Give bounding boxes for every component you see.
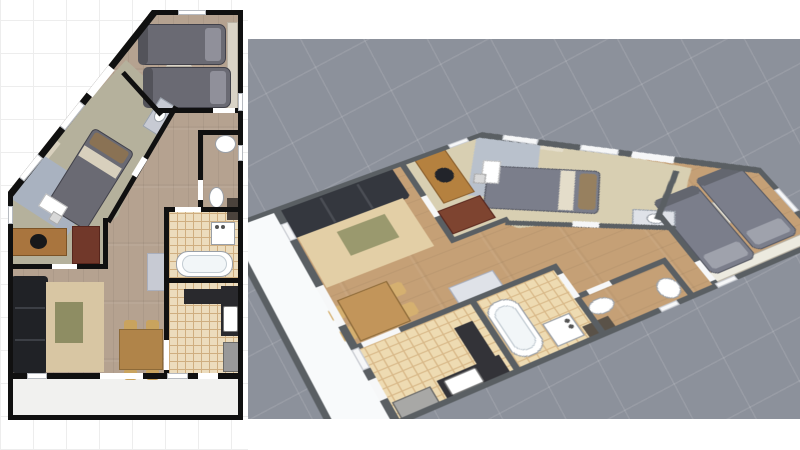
- dining-table: [119, 329, 163, 370]
- master-desk-chair: [473, 173, 487, 183]
- window-top: [178, 10, 206, 15]
- sofa: [11, 276, 48, 373]
- twin-bed-2-pillow: [210, 71, 226, 104]
- master-bed-linen: [558, 170, 576, 210]
- wall-bath-kitchen: [164, 278, 240, 283]
- bathtub-inner: [182, 255, 227, 273]
- balcony-door-2: [198, 373, 218, 379]
- wall-wc-top: [201, 130, 241, 135]
- wall-wc-left: [198, 130, 203, 180]
- floor-balcony: [13, 379, 238, 415]
- washer-knob-2: [221, 225, 225, 229]
- master-bed-pillow: [578, 173, 597, 210]
- balcony-door-1: [100, 373, 143, 379]
- office-chair: [30, 234, 47, 249]
- coffee-table: [55, 302, 83, 343]
- door-bathroom: [175, 207, 201, 212]
- floor-plan-3d-viewport: [248, 39, 800, 419]
- wc-toilet: [209, 187, 224, 208]
- kitchen-counter-top: [184, 289, 222, 304]
- door-wc: [198, 180, 203, 200]
- sofa-seam-2: [15, 339, 45, 341]
- door-office: [52, 264, 77, 269]
- wall-right: [238, 10, 243, 420]
- office-cabinet: [72, 226, 100, 264]
- wc-corner-sink: [215, 135, 236, 153]
- door-kitchen: [164, 340, 169, 370]
- twin-bed-1-pillow: [205, 28, 221, 61]
- wall-office-right: [103, 218, 108, 269]
- window-right-2: [238, 145, 243, 161]
- sofa-seam-1: [15, 307, 45, 309]
- hall-cabinet: [147, 253, 165, 291]
- window-left: [8, 206, 13, 224]
- window-right-1: [238, 93, 243, 111]
- balcony-window-2: [167, 373, 188, 379]
- floor-plan-2d-canvas: [0, 0, 248, 450]
- floor-plan-screenshot: [0, 0, 800, 450]
- door-twin-bedroom: [213, 108, 235, 113]
- kitchen-sink: [223, 306, 238, 332]
- balcony-window-1: [27, 373, 47, 379]
- door-master-bedroom: [572, 221, 599, 228]
- wall-bottom: [8, 415, 243, 420]
- washer-knob-1: [215, 225, 219, 229]
